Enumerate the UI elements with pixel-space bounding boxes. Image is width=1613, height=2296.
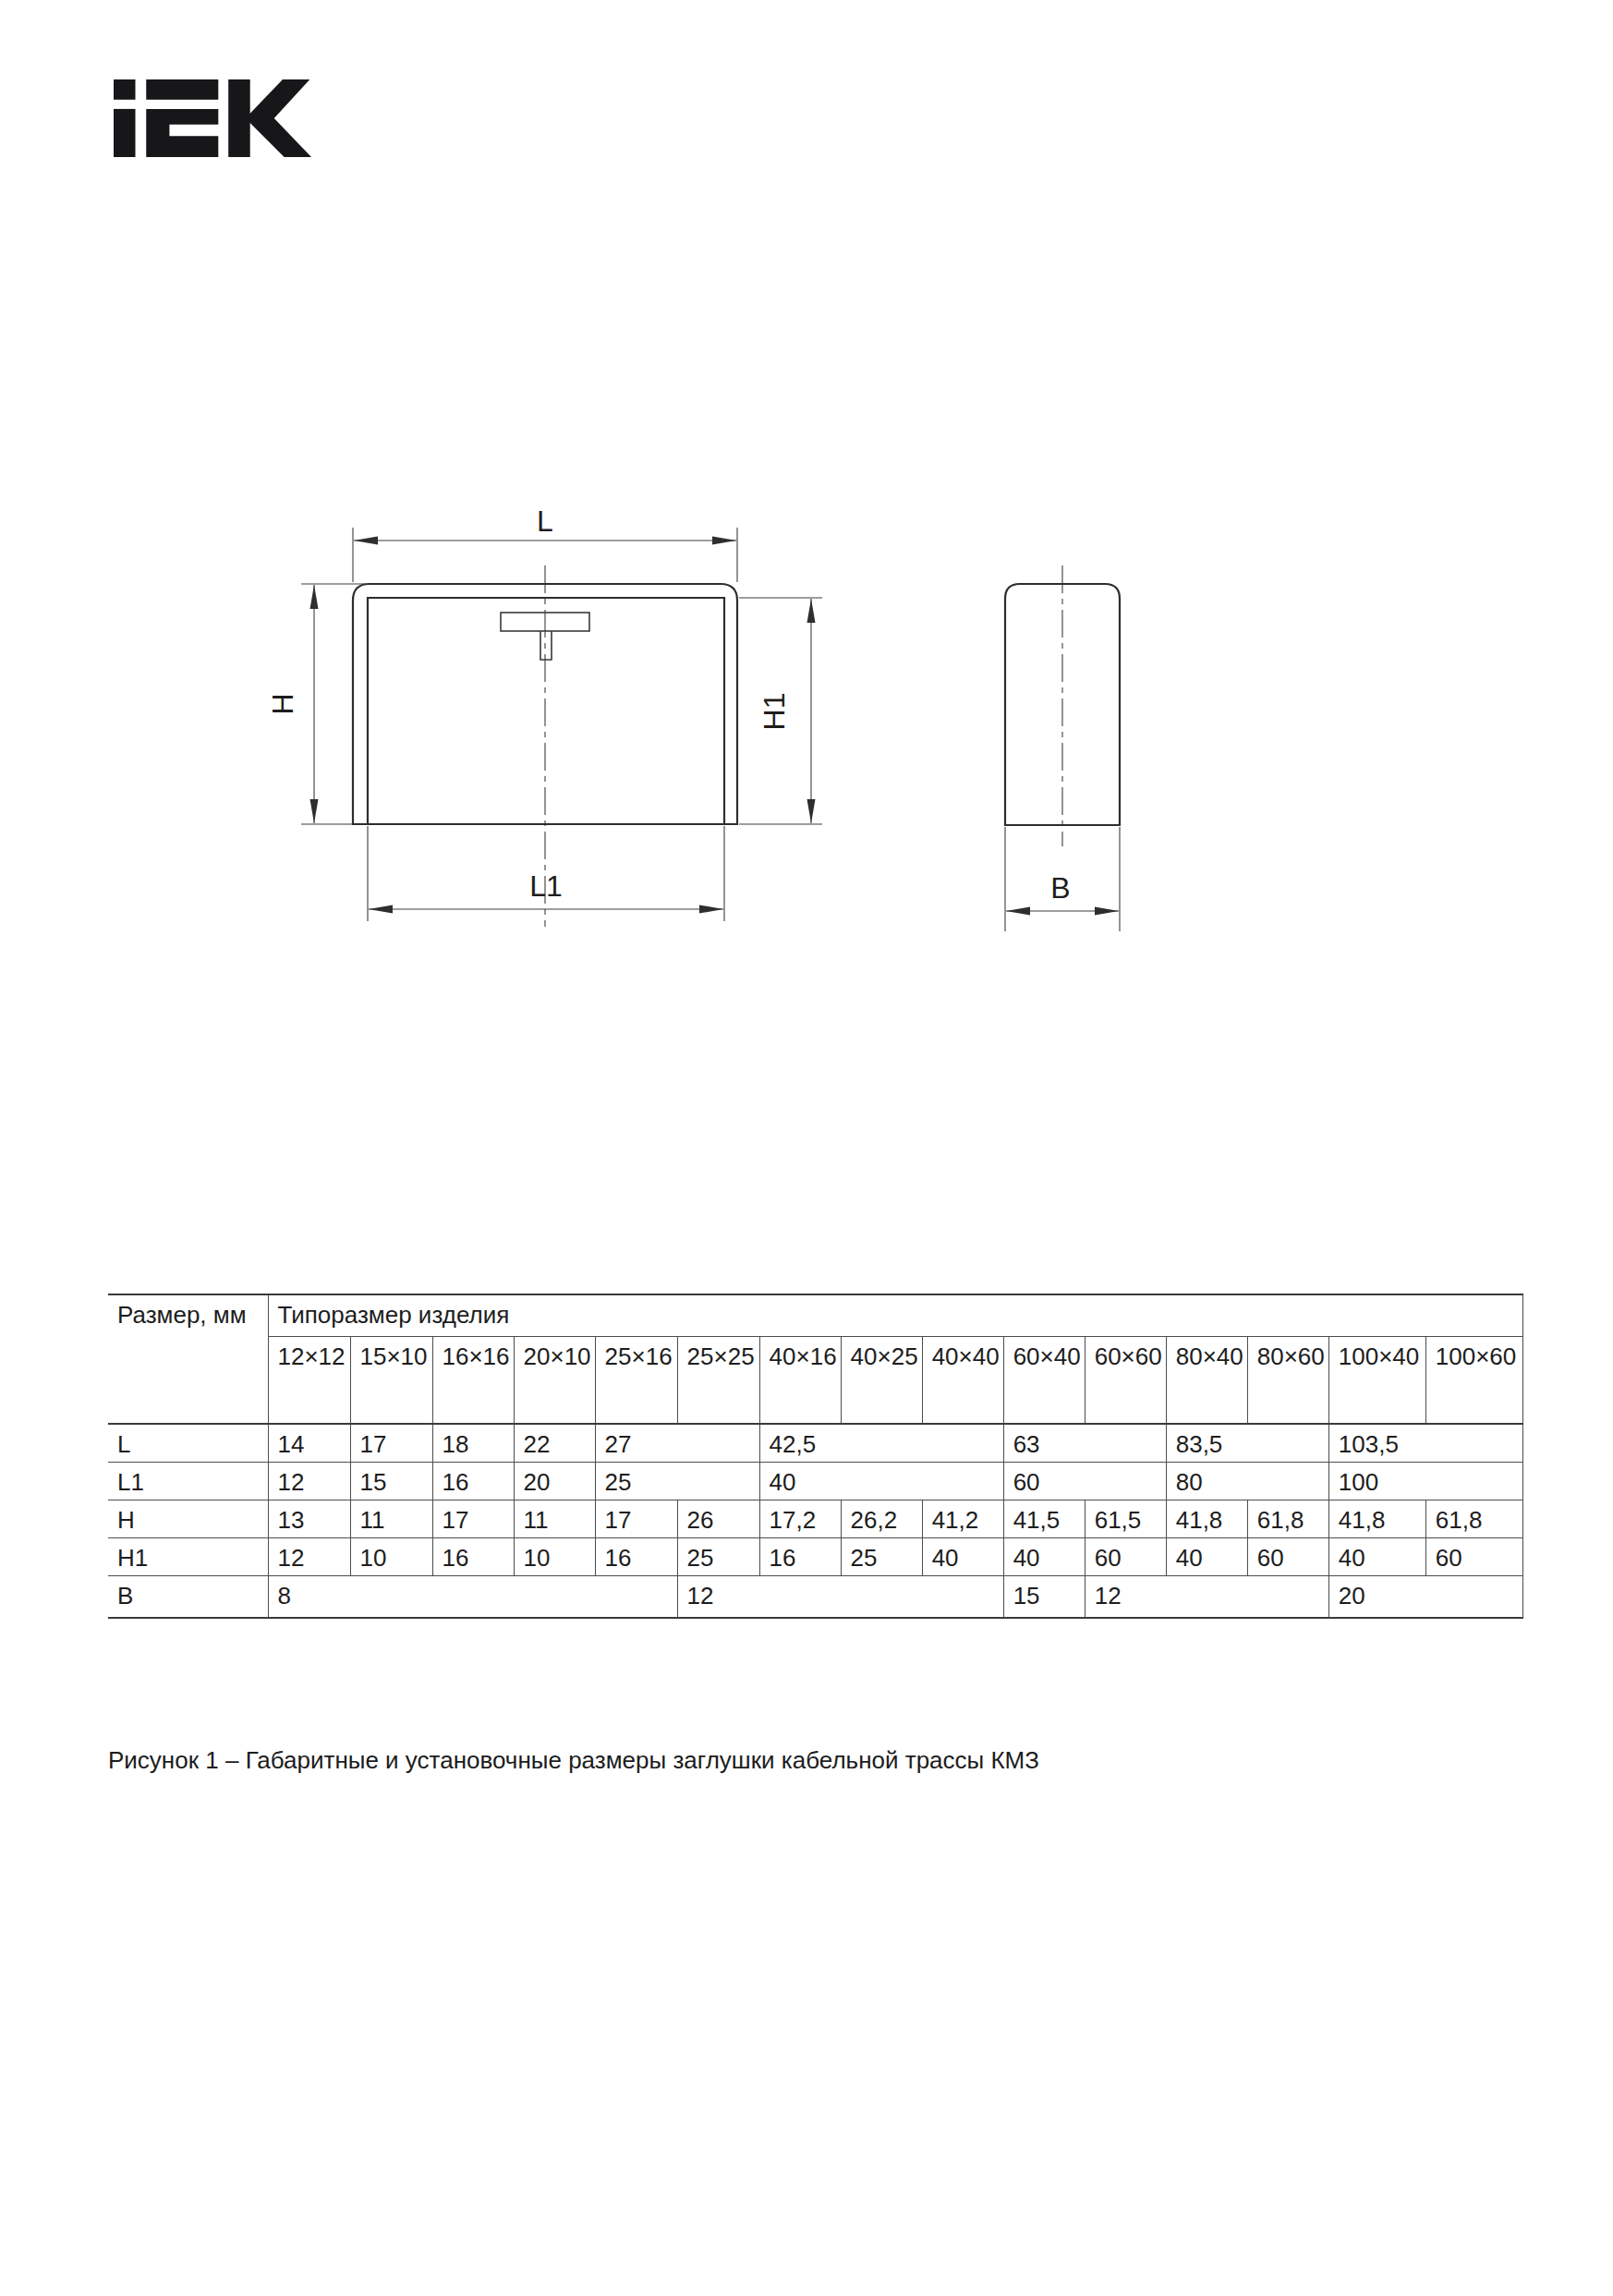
column-header: 25×25 — [677, 1337, 759, 1425]
table-cell: 14 — [268, 1424, 350, 1462]
dim-label-l: L — [537, 504, 553, 538]
table-cell: 15 — [350, 1462, 432, 1500]
dimension-H1: H1 — [739, 598, 822, 824]
document-page: L L1 H — [0, 0, 1613, 2296]
table-cell: 42,5 — [759, 1424, 1003, 1462]
table-cell: 83,5 — [1166, 1424, 1328, 1462]
table-cell: 60 — [1247, 1537, 1328, 1575]
column-header: 100×40 — [1328, 1337, 1425, 1425]
table-head: Размер, ммТипоразмер изделия12×1215×1016… — [108, 1294, 1522, 1424]
column-header: 15×10 — [350, 1337, 432, 1425]
table-cell: 61,5 — [1085, 1500, 1166, 1537]
table-cell: 40 — [1003, 1537, 1085, 1575]
table-row: H1121016101625162540406040604060 — [108, 1537, 1522, 1575]
table-cell: 26,2 — [841, 1500, 922, 1537]
row-label: H1 — [108, 1537, 268, 1575]
table-cell: 41,5 — [1003, 1500, 1085, 1537]
row-label: L1 — [108, 1462, 268, 1500]
table-row: L11215162025406080100 — [108, 1462, 1522, 1500]
table-cell: 17,2 — [759, 1500, 841, 1537]
table-cell: 40 — [922, 1537, 1003, 1575]
table-cell: 16 — [432, 1462, 514, 1500]
table-cell: 40 — [1328, 1537, 1425, 1575]
table-cell: 16 — [759, 1537, 841, 1575]
figure-caption: Рисунок 1 – Габаритные и установочные ра… — [108, 1745, 1039, 1775]
table-cell: 61,8 — [1247, 1500, 1328, 1537]
table-cell: 25 — [677, 1537, 759, 1575]
table-row: B812151220 — [108, 1575, 1522, 1618]
table-cell: 41,2 — [922, 1500, 1003, 1537]
table-cell: 20 — [1328, 1575, 1522, 1618]
column-header: 40×16 — [759, 1337, 841, 1425]
column-header: 12×12 — [268, 1337, 350, 1425]
table-cell: 22 — [514, 1424, 595, 1462]
table-cell: 61,8 — [1425, 1500, 1522, 1537]
row-label: H — [108, 1500, 268, 1537]
table-cell: 11 — [514, 1500, 595, 1537]
table-cell: 8 — [268, 1575, 677, 1618]
table-cell: 60 — [1425, 1537, 1522, 1575]
table-cell: 60 — [1085, 1537, 1166, 1575]
table-cell: 26 — [677, 1500, 759, 1537]
table-cell: 12 — [268, 1537, 350, 1575]
column-header: 100×60 — [1425, 1337, 1522, 1425]
table-cell: 17 — [350, 1424, 432, 1462]
dimension-H: H — [266, 584, 366, 824]
table-cell: 100 — [1328, 1462, 1522, 1500]
table-cell: 80 — [1166, 1462, 1328, 1500]
table-cell: 12 — [677, 1575, 1003, 1618]
iek-logo — [114, 79, 311, 157]
table-cell: 10 — [514, 1537, 595, 1575]
dim-label-h1: H1 — [758, 693, 791, 731]
table-body: L141718222742,56383,5103,5L1121516202540… — [108, 1424, 1522, 1618]
front-view: L L1 H — [266, 504, 822, 927]
table-row: L141718222742,56383,5103,5 — [108, 1424, 1522, 1462]
table-cell: 11 — [350, 1500, 432, 1537]
table-cell: 41,8 — [1166, 1500, 1247, 1537]
table-cell: 10 — [350, 1537, 432, 1575]
table-cell: 25 — [841, 1537, 922, 1575]
table-cell: 12 — [1085, 1575, 1328, 1618]
table-cell: 17 — [595, 1500, 677, 1537]
table-row: H13111711172617,226,241,241,561,541,861,… — [108, 1500, 1522, 1537]
table-cell: 18 — [432, 1424, 514, 1462]
table-cell: 13 — [268, 1500, 350, 1537]
table-cell: 15 — [1003, 1575, 1085, 1618]
column-header: 16×16 — [432, 1337, 514, 1425]
column-header: 40×40 — [922, 1337, 1003, 1425]
column-header: 40×25 — [841, 1337, 922, 1425]
column-header: 80×40 — [1166, 1337, 1247, 1425]
table-cell: 25 — [595, 1462, 759, 1500]
column-header: 60×60 — [1085, 1337, 1166, 1425]
column-header: 80×60 — [1247, 1337, 1328, 1425]
dimensions-table: Размер, ммТипоразмер изделия12×1215×1016… — [108, 1294, 1523, 1619]
table-cell: 27 — [595, 1424, 759, 1462]
table-cell: 63 — [1003, 1424, 1166, 1462]
table-cell: 40 — [1166, 1537, 1247, 1575]
table-cell: 20 — [514, 1462, 595, 1500]
corner-header: Размер, мм — [108, 1294, 268, 1424]
table-cell: 103,5 — [1328, 1424, 1522, 1462]
row-label: B — [108, 1575, 268, 1618]
dim-label-h: H — [266, 693, 299, 714]
dim-label-l1: L1 — [529, 869, 563, 903]
side-view: B — [1005, 565, 1120, 931]
latch-stem — [540, 631, 552, 660]
row-label: L — [108, 1424, 268, 1462]
table-cell: 16 — [432, 1537, 514, 1575]
column-header: 60×40 — [1003, 1337, 1085, 1425]
iek-logo-icon — [114, 79, 311, 157]
column-header: 25×16 — [595, 1337, 677, 1425]
column-header: 20×10 — [514, 1337, 595, 1425]
table-cell: 60 — [1003, 1462, 1166, 1500]
table-cell: 16 — [595, 1537, 677, 1575]
group-header: Типоразмер изделия — [268, 1294, 1522, 1337]
table-cell: 40 — [759, 1462, 1003, 1500]
technical-drawing: L L1 H — [259, 499, 1164, 952]
table-cell: 41,8 — [1328, 1500, 1425, 1537]
table-cell: 17 — [432, 1500, 514, 1537]
dimension-L1: L1 — [368, 826, 724, 921]
table-cell: 12 — [268, 1462, 350, 1500]
dim-label-b: B — [1050, 871, 1070, 905]
